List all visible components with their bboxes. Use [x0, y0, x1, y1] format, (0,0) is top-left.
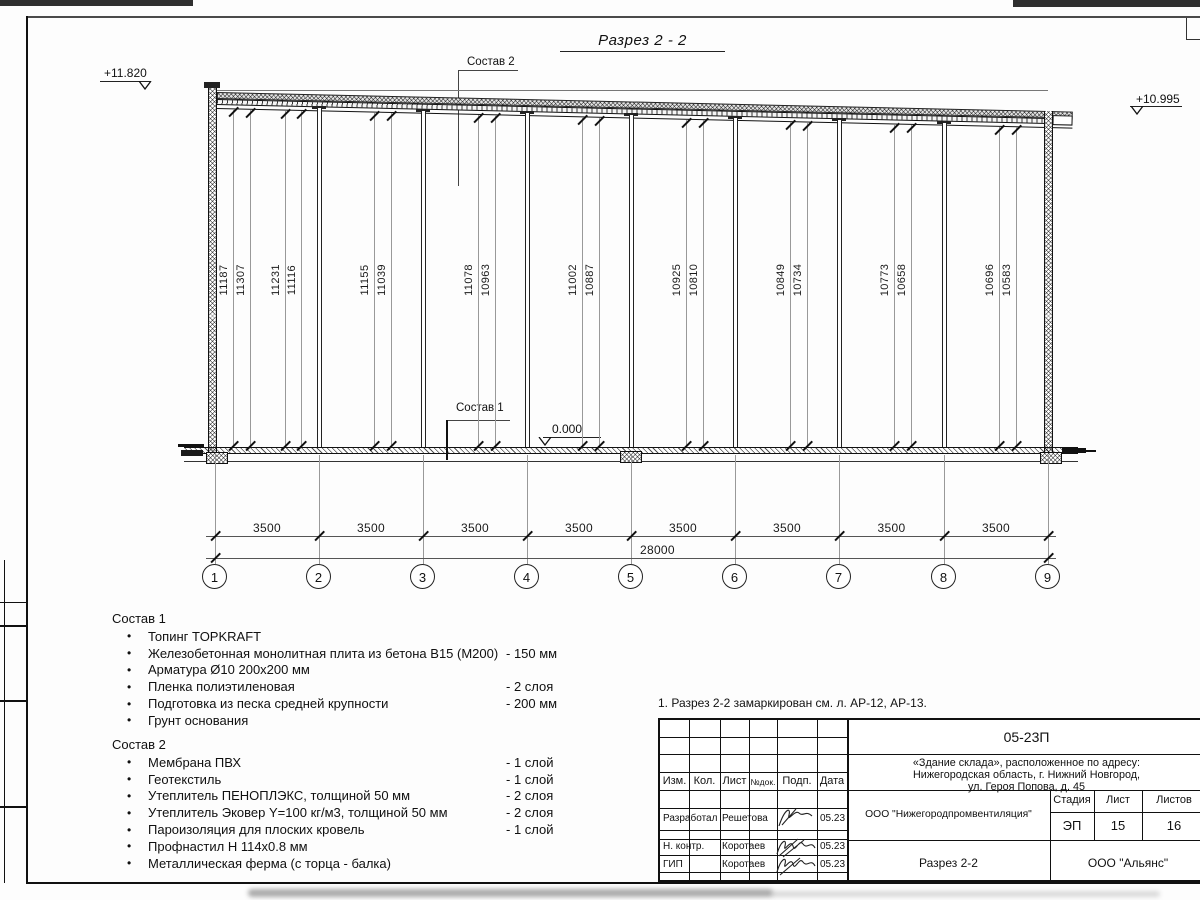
height-dim-line: [233, 109, 234, 446]
signature: [774, 854, 818, 878]
bullet-icon: •: [112, 629, 148, 643]
column: [733, 118, 738, 447]
tb-sheet-value: 15: [1094, 818, 1142, 833]
tb-row2-role: Н. контр.: [663, 841, 719, 852]
item-name: Мембрана ПВХ: [148, 755, 506, 770]
height-dim-label: 10963: [480, 250, 492, 310]
wall-right: [1044, 111, 1053, 453]
slab-edge-right-1: [1062, 448, 1086, 453]
item-value: - 1 слой: [506, 772, 554, 787]
bay-dim-label: 3500: [455, 521, 495, 535]
height-dim-line: [686, 120, 687, 446]
height-dim-label: 11078: [463, 250, 475, 310]
wall-left: [208, 84, 217, 453]
title-block-line: [660, 855, 847, 856]
height-dim-line: [999, 127, 1000, 446]
axis-bubble: 1: [202, 564, 227, 589]
title-block-line: [847, 754, 1200, 755]
tb-contractor: ООО "Альянс": [1050, 856, 1200, 870]
height-dim-line: [703, 120, 704, 446]
title-block-line: [660, 808, 847, 809]
axis-bubble: 9: [1035, 564, 1060, 589]
axis-line: [215, 455, 216, 564]
column: [942, 123, 947, 447]
column: [525, 113, 530, 447]
height-dim-label: 11155: [359, 250, 371, 310]
title-block-line: [660, 790, 847, 791]
title-block-line: [660, 872, 847, 873]
height-dim-line: [894, 125, 895, 446]
column: [421, 111, 426, 447]
height-dim-label: 10849: [775, 250, 787, 310]
height-dim-line: [301, 111, 302, 446]
bullet-icon: •: [112, 856, 148, 870]
sostav1-item: •Грунт основания: [112, 712, 564, 729]
sostav2-item: •Утеплитель ПЕНОПЛЭКС, толщиной 50 мм- 2…: [112, 788, 564, 805]
tb-row3-date: 05.23: [819, 859, 846, 870]
title-block-line: [1050, 812, 1200, 813]
bay-dim-label: 3500: [872, 521, 912, 535]
item-name: Металлическая ферма (с торца - балка): [148, 856, 506, 871]
tb-col-kol: Кол.: [689, 775, 720, 787]
item-value: - 2 слоя: [506, 805, 553, 820]
bullet-icon: •: [112, 646, 148, 660]
slab-edge-right-2: [1086, 450, 1096, 452]
bullet-icon: •: [112, 789, 148, 803]
height-dim-line: [582, 117, 583, 446]
title-block-line: [660, 772, 847, 773]
item-value: - 150 мм: [506, 646, 557, 661]
slab-edge-left-1: [178, 444, 204, 447]
axis-bubble: 8: [931, 564, 956, 589]
axis-bubble: 4: [514, 564, 539, 589]
height-dim-label: 11002: [567, 250, 579, 310]
bay-dim-label: 3500: [247, 521, 287, 535]
tb-col-ndok: №док.: [749, 777, 777, 787]
bullet-icon: •: [112, 772, 148, 786]
tb-row1-name: Решетова: [722, 813, 776, 824]
axis-line: [1048, 455, 1049, 564]
drawing-sheet: Разрез 2 - 2 +11.820 +10.995 Состав 2 Со…: [0, 0, 1200, 900]
title-block-line: [660, 830, 847, 831]
tb-sheets-value: 16: [1142, 818, 1200, 833]
total-dim-line: [206, 558, 1056, 559]
height-dim-label: 10887: [584, 250, 596, 310]
axis-line: [839, 455, 840, 564]
sostav2-item: •Металлическая ферма (с торца - балка): [112, 855, 564, 872]
height-dim-label: 11307: [235, 250, 247, 310]
axis-bubble: 3: [410, 564, 435, 589]
axis-line: [527, 455, 528, 564]
title-block-line: [660, 839, 847, 840]
tb-sheet-label: Лист: [1094, 794, 1142, 806]
height-dim-label: 10734: [792, 250, 804, 310]
sostav2-item: •Профнастил Н 114х0.8 мм: [112, 838, 564, 855]
column: [629, 115, 634, 447]
height-dim-line: [391, 113, 392, 446]
tb-row3-role: ГИП: [663, 859, 719, 870]
height-dim-label: 10583: [1001, 250, 1013, 310]
axis-line: [735, 455, 736, 564]
height-dim-line: [1016, 127, 1017, 446]
sostav1-item: •Арматура Ø10 200х200 мм: [112, 662, 564, 679]
item-name: Железобетонная монолитная плита из бетон…: [148, 646, 506, 661]
item-name: Геотекстиль: [148, 772, 506, 787]
sostav2-item: •Утеплитель Эковер Y=100 кг/м3, толщиной…: [112, 804, 564, 821]
bullet-icon: •: [112, 806, 148, 820]
height-dim-label: 11231: [270, 250, 282, 310]
item-name: Утеплитель Эковер Y=100 кг/м3, толщиной …: [148, 805, 506, 820]
height-dim-label: 10773: [879, 250, 891, 310]
height-dim-label: 11187: [218, 250, 230, 310]
roof-edge-beam: [1052, 115, 1072, 125]
height-dim-label: 10658: [896, 250, 908, 310]
height-dim-label: 11116: [286, 250, 298, 310]
tb-row2-date: 05.23: [819, 841, 846, 852]
axis-line: [319, 455, 320, 564]
sostav1-heading: Состав 1: [112, 611, 564, 628]
item-name: Грунт основания: [148, 713, 506, 728]
axis-line: [944, 455, 945, 564]
tb-drawing-name: Разрез 2-2: [847, 856, 1050, 870]
tb-col-izm: Изм.: [660, 775, 689, 787]
tb-stage-label: Стадия: [1050, 794, 1094, 806]
item-name: Топинг TOPKRAFT: [148, 629, 506, 644]
bay-dim-label: 3500: [559, 521, 599, 535]
bullet-icon: •: [112, 713, 148, 727]
footing: [1040, 452, 1062, 464]
bullet-icon: •: [112, 823, 148, 837]
bay-dim-label: 3500: [767, 521, 807, 535]
slab-edge-left-2: [181, 450, 203, 456]
axis-line: [423, 455, 424, 564]
height-dim-line: [599, 118, 600, 446]
tb-col-podp: Подп.: [777, 775, 817, 787]
item-name: Утеплитель ПЕНОПЛЭКС, толщиной 50 мм: [148, 788, 506, 803]
item-name: Пароизоляция для плоских кровель: [148, 822, 506, 837]
item-value: - 1 слой: [506, 755, 554, 770]
tb-row2-name: Коротаев: [722, 841, 776, 852]
height-dim-line: [807, 123, 808, 446]
wall-left-cap: [204, 82, 220, 88]
axis-bubble: 7: [826, 564, 851, 589]
sostav1-item: •Подготовка из песка средней крупности- …: [112, 695, 564, 712]
tb-row1-role: Разработал: [663, 813, 719, 824]
title-block-line: [847, 840, 1200, 841]
axis-bubble: 6: [722, 564, 747, 589]
tb-row1-date: 05.23: [819, 813, 846, 824]
item-value: - 1 слой: [506, 822, 554, 837]
bay-dim-label: 3500: [351, 521, 391, 535]
sostav2-item: •Мембрана ПВХ- 1 слой: [112, 754, 564, 771]
height-dim-line: [495, 115, 496, 446]
title-block: Изм. Кол. Лист №док. Подп. Дата 05-23П «…: [658, 718, 1200, 882]
height-dim-line: [478, 115, 479, 446]
item-name: Арматура Ø10 200х200 мм: [148, 662, 506, 677]
tb-col-list: Лист: [720, 775, 749, 787]
bullet-icon: •: [112, 755, 148, 769]
signature: [776, 804, 816, 830]
height-dim-line: [374, 113, 375, 446]
roof-level-line: [217, 90, 1048, 91]
sostav1-item: •Пленка полиэтиленовая- 2 слоя: [112, 678, 564, 695]
height-dim-line: [790, 122, 791, 446]
item-value: - 200 мм: [506, 696, 557, 711]
tb-project-line3: ул. Героя Попова, д. 45: [847, 781, 1200, 793]
tb-project-line2: Нижегородская область, г. Нижний Новгоро…: [847, 769, 1200, 781]
tb-project-line1: «Здание склада», расположенное по адресу…: [847, 757, 1200, 769]
height-dim-label: 10696: [984, 250, 996, 310]
drawing-note: 1. Разрез 2-2 замаркирован см. л. АР-12,…: [658, 696, 927, 710]
sostav1-item: •Топинг TOPKRAFT: [112, 628, 564, 645]
tb-doc-number: 05-23П: [847, 729, 1200, 745]
item-value: - 2 слоя: [506, 788, 553, 803]
item-name: Профнастил Н 114х0.8 мм: [148, 839, 506, 854]
total-dim-label: 28000: [640, 543, 675, 557]
tb-stage-value: ЭП: [1050, 818, 1094, 833]
sostav1-item: •Железобетонная монолитная плита из бето…: [112, 645, 564, 662]
height-dim-line: [250, 110, 251, 446]
footing: [206, 452, 228, 464]
column: [317, 108, 322, 447]
bullet-icon: •: [112, 663, 148, 677]
tb-row3-name: Коротаев: [722, 859, 776, 870]
tb-col-data: Дата: [817, 775, 847, 787]
bullet-icon: •: [112, 697, 148, 711]
tb-sheets-label: Листов: [1142, 794, 1200, 806]
title-block-line: [660, 737, 847, 738]
sostav2-heading: Состав 2: [112, 737, 564, 754]
axis-line: [631, 455, 632, 564]
sostav2-item: •Геотекстиль- 1 слой: [112, 771, 564, 788]
axis-bubble: 2: [306, 564, 331, 589]
height-dim-label: 10810: [688, 250, 700, 310]
bullet-icon: •: [112, 839, 148, 853]
column: [837, 120, 842, 447]
sostav1-list: Состав 1 •Топинг TOPKRAFT•Железобетонная…: [112, 611, 564, 729]
item-name: Пленка полиэтиленовая: [148, 679, 506, 694]
height-dim-label: 10925: [671, 250, 683, 310]
tb-org: ООО "Нижегородпромвентиляция": [849, 809, 1048, 820]
height-dim-line: [911, 125, 912, 446]
axis-bubble: 5: [618, 564, 643, 589]
height-dim-label: 11039: [376, 250, 388, 310]
bay-dim-label: 3500: [976, 521, 1016, 535]
bullet-icon: •: [112, 680, 148, 694]
sostav2-item: •Пароизоляция для плоских кровель- 1 сло…: [112, 821, 564, 838]
item-value: - 2 слоя: [506, 679, 553, 694]
bay-dim-label: 3500: [663, 521, 703, 535]
title-block-line: [660, 754, 847, 755]
sostav2-list: Состав 2 •Мембрана ПВХ- 1 слой•Геотексти…: [112, 737, 564, 872]
item-name: Подготовка из песка средней крупности: [148, 696, 506, 711]
